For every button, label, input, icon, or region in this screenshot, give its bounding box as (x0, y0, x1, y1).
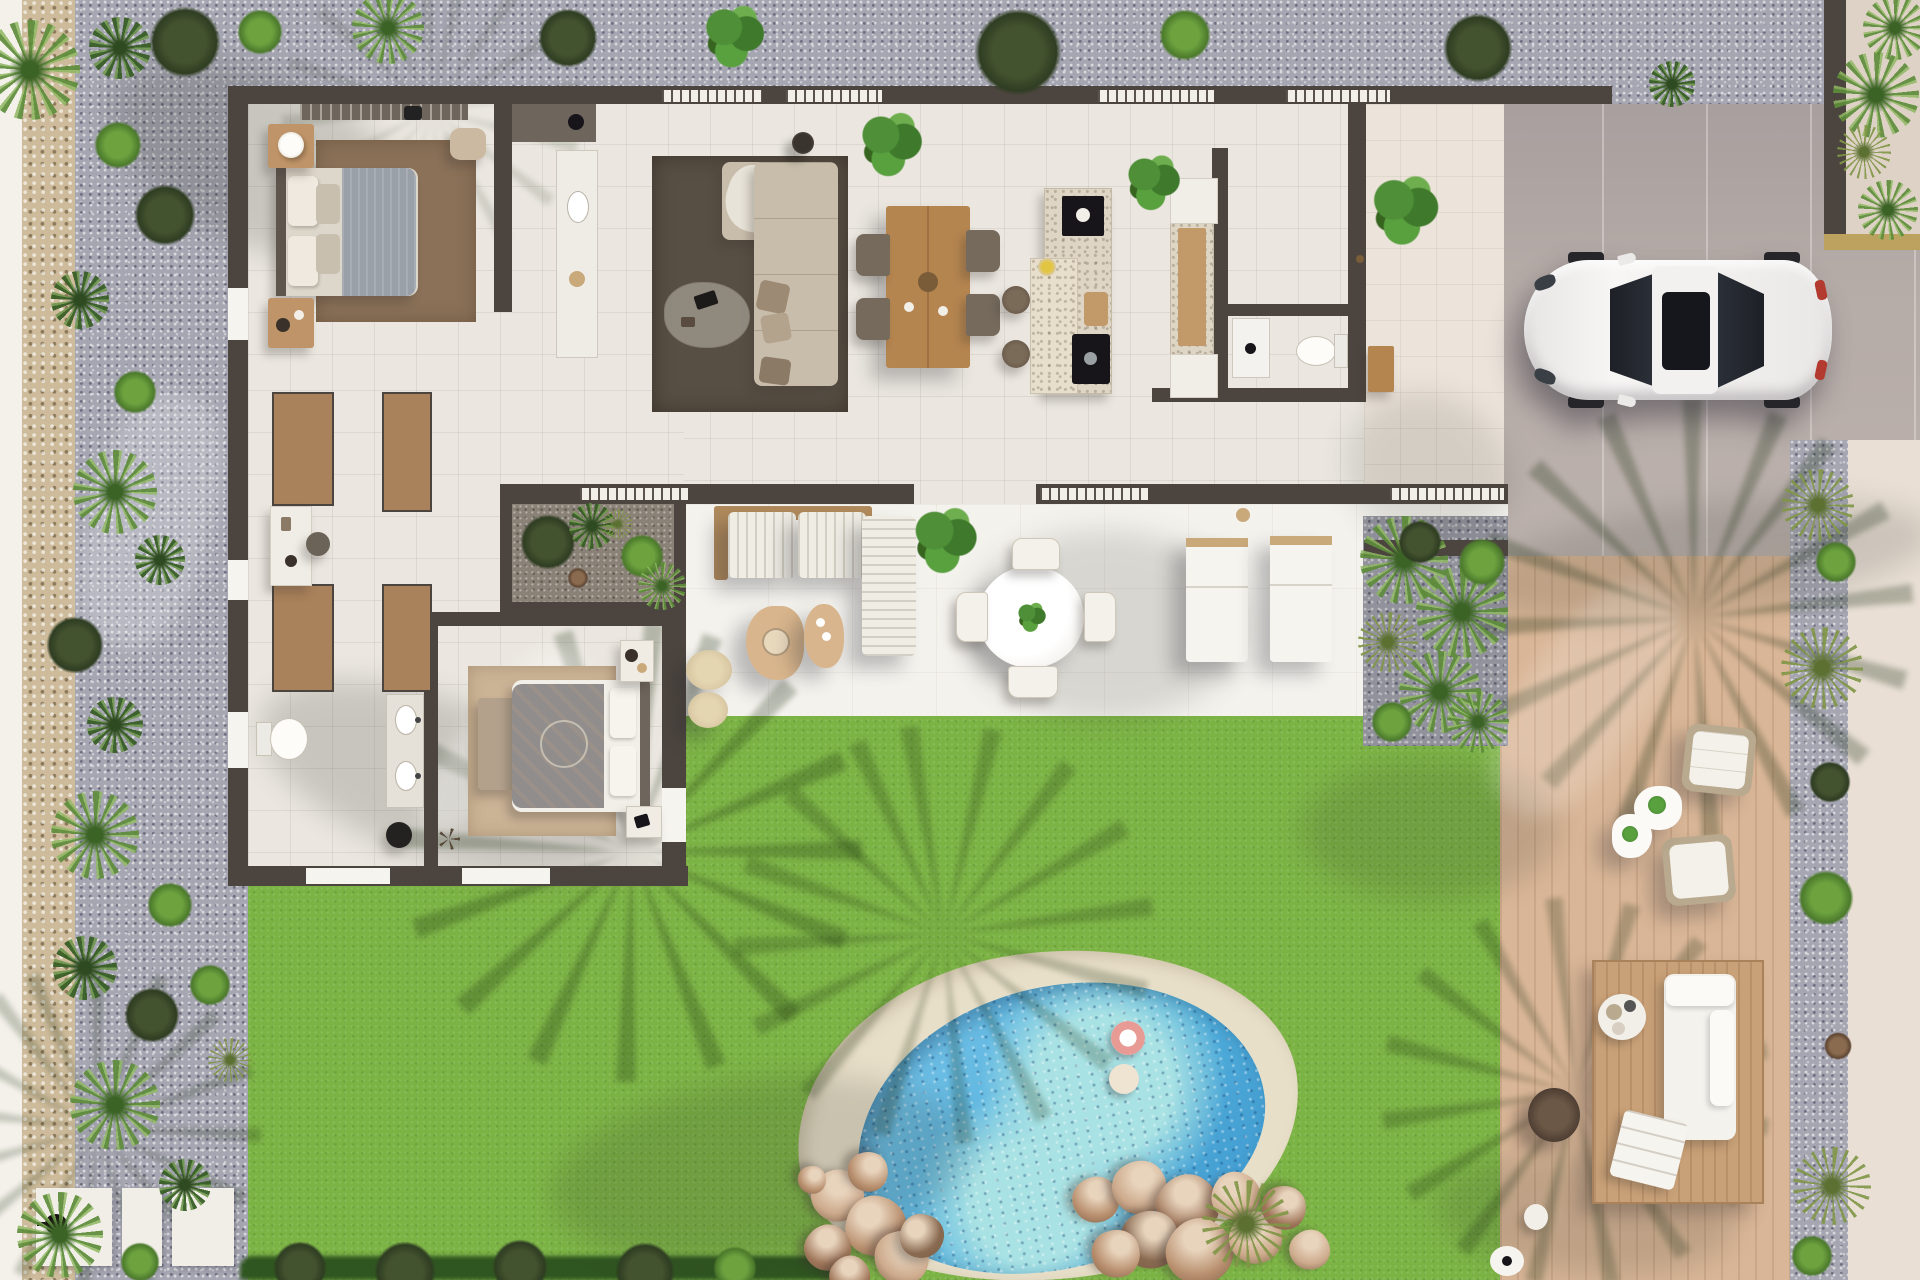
wardrobe-strip (272, 392, 334, 506)
outdoor-chair (956, 592, 988, 642)
outdoor-chair (1084, 592, 1116, 642)
outdoor-sofa-frame-side (714, 506, 728, 580)
lounger-frame (1186, 538, 1248, 547)
outdoor-chair (1008, 666, 1058, 698)
wall-south-living (500, 484, 914, 504)
coffee-table-glass (664, 282, 750, 348)
deck-cylinder-stool (1524, 1204, 1548, 1230)
tray-bowl (1624, 1000, 1636, 1012)
washing-machine (1232, 318, 1270, 378)
south-louvre-3 (1390, 488, 1504, 500)
right-gravel-bed (1790, 440, 1848, 1280)
window-west-3 (228, 712, 248, 768)
pillow (316, 234, 340, 274)
plate-dot (1502, 1256, 1512, 1266)
sun-lounger (1186, 538, 1248, 662)
chair-cushion (1688, 730, 1749, 790)
wardrobe-strip (382, 584, 432, 692)
window-west-1 (228, 288, 248, 340)
decor-cup (294, 310, 304, 320)
decor-bowl (625, 649, 638, 662)
wc-toilet (1296, 334, 1348, 366)
sofa-pillow (755, 279, 791, 315)
desk-chair (306, 532, 330, 556)
bed2-blanket (512, 684, 604, 808)
starfish-decor (438, 828, 460, 850)
master-bed (276, 168, 418, 296)
coffee-table-book (681, 317, 695, 327)
deck-side-table (1612, 814, 1652, 858)
tray-bowl (1606, 1004, 1622, 1020)
wardrobe-strip (382, 392, 432, 512)
desk-decor (281, 517, 291, 531)
table-plant (1648, 796, 1666, 814)
entry-console (1368, 346, 1394, 392)
nightstand (268, 124, 314, 168)
dining-chair (856, 234, 890, 276)
bedroom2-bed (512, 680, 650, 812)
corner-gate (1824, 234, 1920, 250)
faucet (415, 717, 421, 723)
sofa-pillow (758, 356, 791, 386)
cutting-board (1084, 292, 1108, 326)
pillow (610, 746, 636, 796)
fire-bowl (1528, 1088, 1580, 1142)
pool-float-mat (1109, 1064, 1139, 1094)
outdoor-chair (1012, 538, 1060, 570)
wall-porch-south (1364, 540, 1508, 556)
dining-chair (966, 230, 1000, 272)
dining-table (886, 206, 970, 368)
corner-wall (1824, 0, 1846, 234)
terrace-coffee-table (746, 606, 804, 680)
north-louvre-3 (1098, 90, 1214, 102)
fruit-bowl (1038, 258, 1056, 276)
lounger-fold (1270, 584, 1332, 586)
decor-bowl (276, 318, 290, 332)
entry-porch-floor (1364, 104, 1504, 504)
bar-stool (1002, 340, 1030, 368)
corner-walkway (1846, 0, 1920, 234)
faucet (415, 773, 421, 779)
south-louvre-2 (1040, 488, 1148, 500)
table-lamp (278, 132, 304, 158)
bed-throw (342, 168, 416, 296)
ensuite-basin-dark (568, 114, 584, 130)
vanity-sink (395, 705, 417, 735)
bedroom2-bench (478, 698, 514, 790)
window-south-1 (306, 868, 390, 884)
tray-bowl (1612, 1022, 1625, 1035)
mattress-bolster (1710, 1010, 1734, 1106)
rattan-pouf (686, 650, 732, 690)
dining-chair (966, 294, 1000, 336)
toilet-bowl (270, 718, 308, 760)
wall-east-wing (662, 612, 686, 886)
floor-plan-scene (0, 0, 1920, 1280)
bath-stool (386, 822, 412, 848)
double-vanity (386, 694, 424, 808)
plot-border-pebbles (22, 0, 75, 1280)
pillow (316, 184, 340, 224)
pillow (288, 236, 318, 286)
blanket-wreath (540, 720, 588, 768)
table-plant (1622, 826, 1638, 842)
sofa-body (754, 162, 838, 386)
master-wardrobe (300, 104, 468, 120)
vanity-sink (395, 761, 417, 791)
paver-slab (122, 1188, 162, 1266)
window-south-2 (462, 868, 550, 884)
right-sidewalk (1848, 440, 1920, 1280)
bottom-hedge (240, 1256, 840, 1280)
cooktop (1062, 196, 1104, 236)
wall-north (228, 86, 1612, 104)
front-door-handle (1356, 255, 1364, 263)
outdoor-dining-table (978, 566, 1084, 668)
deck-plate (1490, 1246, 1524, 1276)
north-louvre-4 (1286, 90, 1390, 102)
toilet-tank (1334, 334, 1348, 368)
washer-knob (1245, 343, 1256, 354)
car-windshield (1610, 270, 1654, 390)
table-tray (762, 628, 790, 656)
nightstand (626, 806, 662, 838)
nightstand (268, 298, 314, 348)
valet-stand (404, 106, 422, 120)
paver-slab (172, 1188, 234, 1266)
wall-bedroom-east (494, 102, 512, 312)
counter-board (1178, 228, 1206, 346)
grill-handle (37, 1222, 45, 1226)
kitchen-island-ext (1030, 258, 1078, 394)
ensuite-vanity (556, 150, 598, 358)
south-louvre-1 (580, 488, 688, 500)
deck-tray-table (1598, 994, 1646, 1040)
sofa-pillow (760, 312, 792, 344)
bar-stool (1002, 286, 1030, 314)
table-cups (816, 618, 825, 627)
table-setting (938, 306, 948, 316)
wall-entry (1348, 104, 1366, 402)
toilet-bowl (1296, 336, 1336, 366)
pool-float-ring (1111, 1021, 1145, 1055)
decor-cam (634, 813, 651, 828)
patio-ring-decor (1236, 508, 1250, 522)
chair-cushion (1669, 841, 1729, 900)
daybed-mattress (1664, 974, 1736, 1140)
bath-toilet (256, 718, 308, 758)
pillow (288, 176, 318, 226)
sun-lounger (1270, 536, 1332, 662)
pillow (610, 688, 636, 738)
nightstand (620, 640, 654, 682)
outdoor-sofa-seat (728, 512, 796, 578)
bedroom-pouf (450, 128, 486, 160)
rattan-pouf (688, 692, 728, 728)
mattress-headrest (1666, 976, 1734, 1006)
lounger-frame (1270, 536, 1332, 545)
terrace-side-table (804, 604, 844, 668)
headboard (276, 168, 286, 296)
cooktop-burner (1076, 208, 1090, 222)
desk-decor (285, 555, 297, 567)
island-sink (1072, 334, 1110, 384)
wardrobe-strip (272, 584, 334, 692)
coffee-table-decor (693, 290, 718, 310)
deck-armchair (1681, 723, 1758, 798)
upper-cabinet (1170, 178, 1218, 224)
outdoor-sofa-chaise (862, 516, 916, 656)
wall-south-wing (228, 866, 688, 886)
vanity-decor (569, 271, 585, 287)
table-cups (822, 632, 831, 641)
table-setting (904, 302, 914, 312)
window-east-wing (662, 788, 686, 842)
plot-border-white (0, 0, 22, 1280)
car-sunroof (1662, 292, 1710, 370)
centerpiece (918, 272, 938, 292)
lounger-fold (1186, 586, 1248, 588)
wall-wc-north (1226, 304, 1352, 316)
vanity-sink (567, 191, 589, 223)
decor-cup (637, 663, 647, 673)
car (1524, 252, 1832, 408)
north-louvre-1 (662, 90, 762, 102)
gravel-left-strip (75, 0, 248, 1280)
deck-armchair (1661, 833, 1737, 907)
inner-courtyard (500, 504, 686, 614)
floor-lamp (792, 132, 814, 154)
wall-bed2-north (424, 612, 686, 626)
headboard (640, 680, 650, 812)
sink-faucet (1084, 352, 1097, 365)
bbq-grill (45, 1214, 67, 1234)
dining-chair (856, 298, 890, 340)
north-louvre-2 (786, 90, 882, 102)
lower-cabinet (1170, 354, 1218, 398)
window-west-2 (228, 560, 248, 600)
outdoor-sofa-seat (798, 512, 866, 578)
courtyard-gravel (512, 504, 674, 602)
